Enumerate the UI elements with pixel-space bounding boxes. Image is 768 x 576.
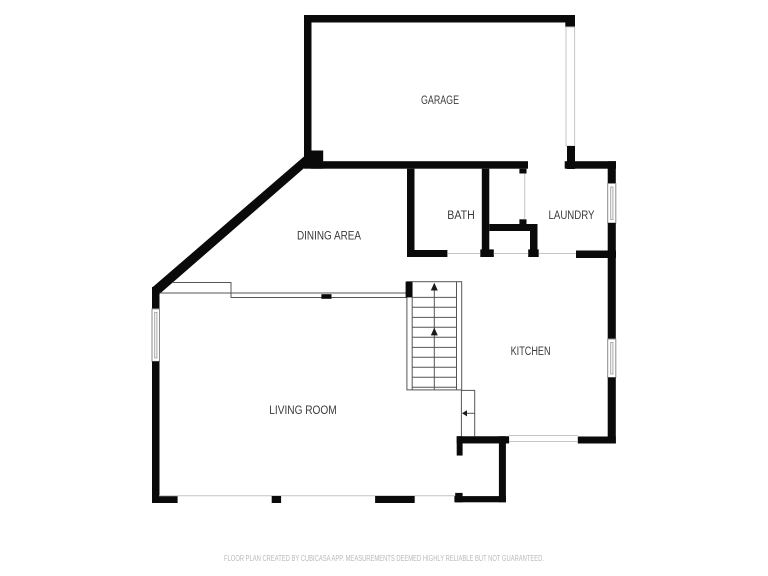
- svg-text:BATH: BATH: [447, 210, 475, 222]
- svg-text:LIVING ROOM: LIVING ROOM: [269, 405, 337, 417]
- svg-text:KITCHEN: KITCHEN: [511, 346, 551, 358]
- svg-text:FLOOR PLAN CREATED BY CUBICASA: FLOOR PLAN CREATED BY CUBICASA APP. MEAS…: [224, 554, 544, 563]
- svg-text:GARAGE: GARAGE: [421, 95, 459, 107]
- svg-text:DINING AREA: DINING AREA: [297, 230, 361, 242]
- svg-text:LAUNDRY: LAUNDRY: [549, 210, 595, 222]
